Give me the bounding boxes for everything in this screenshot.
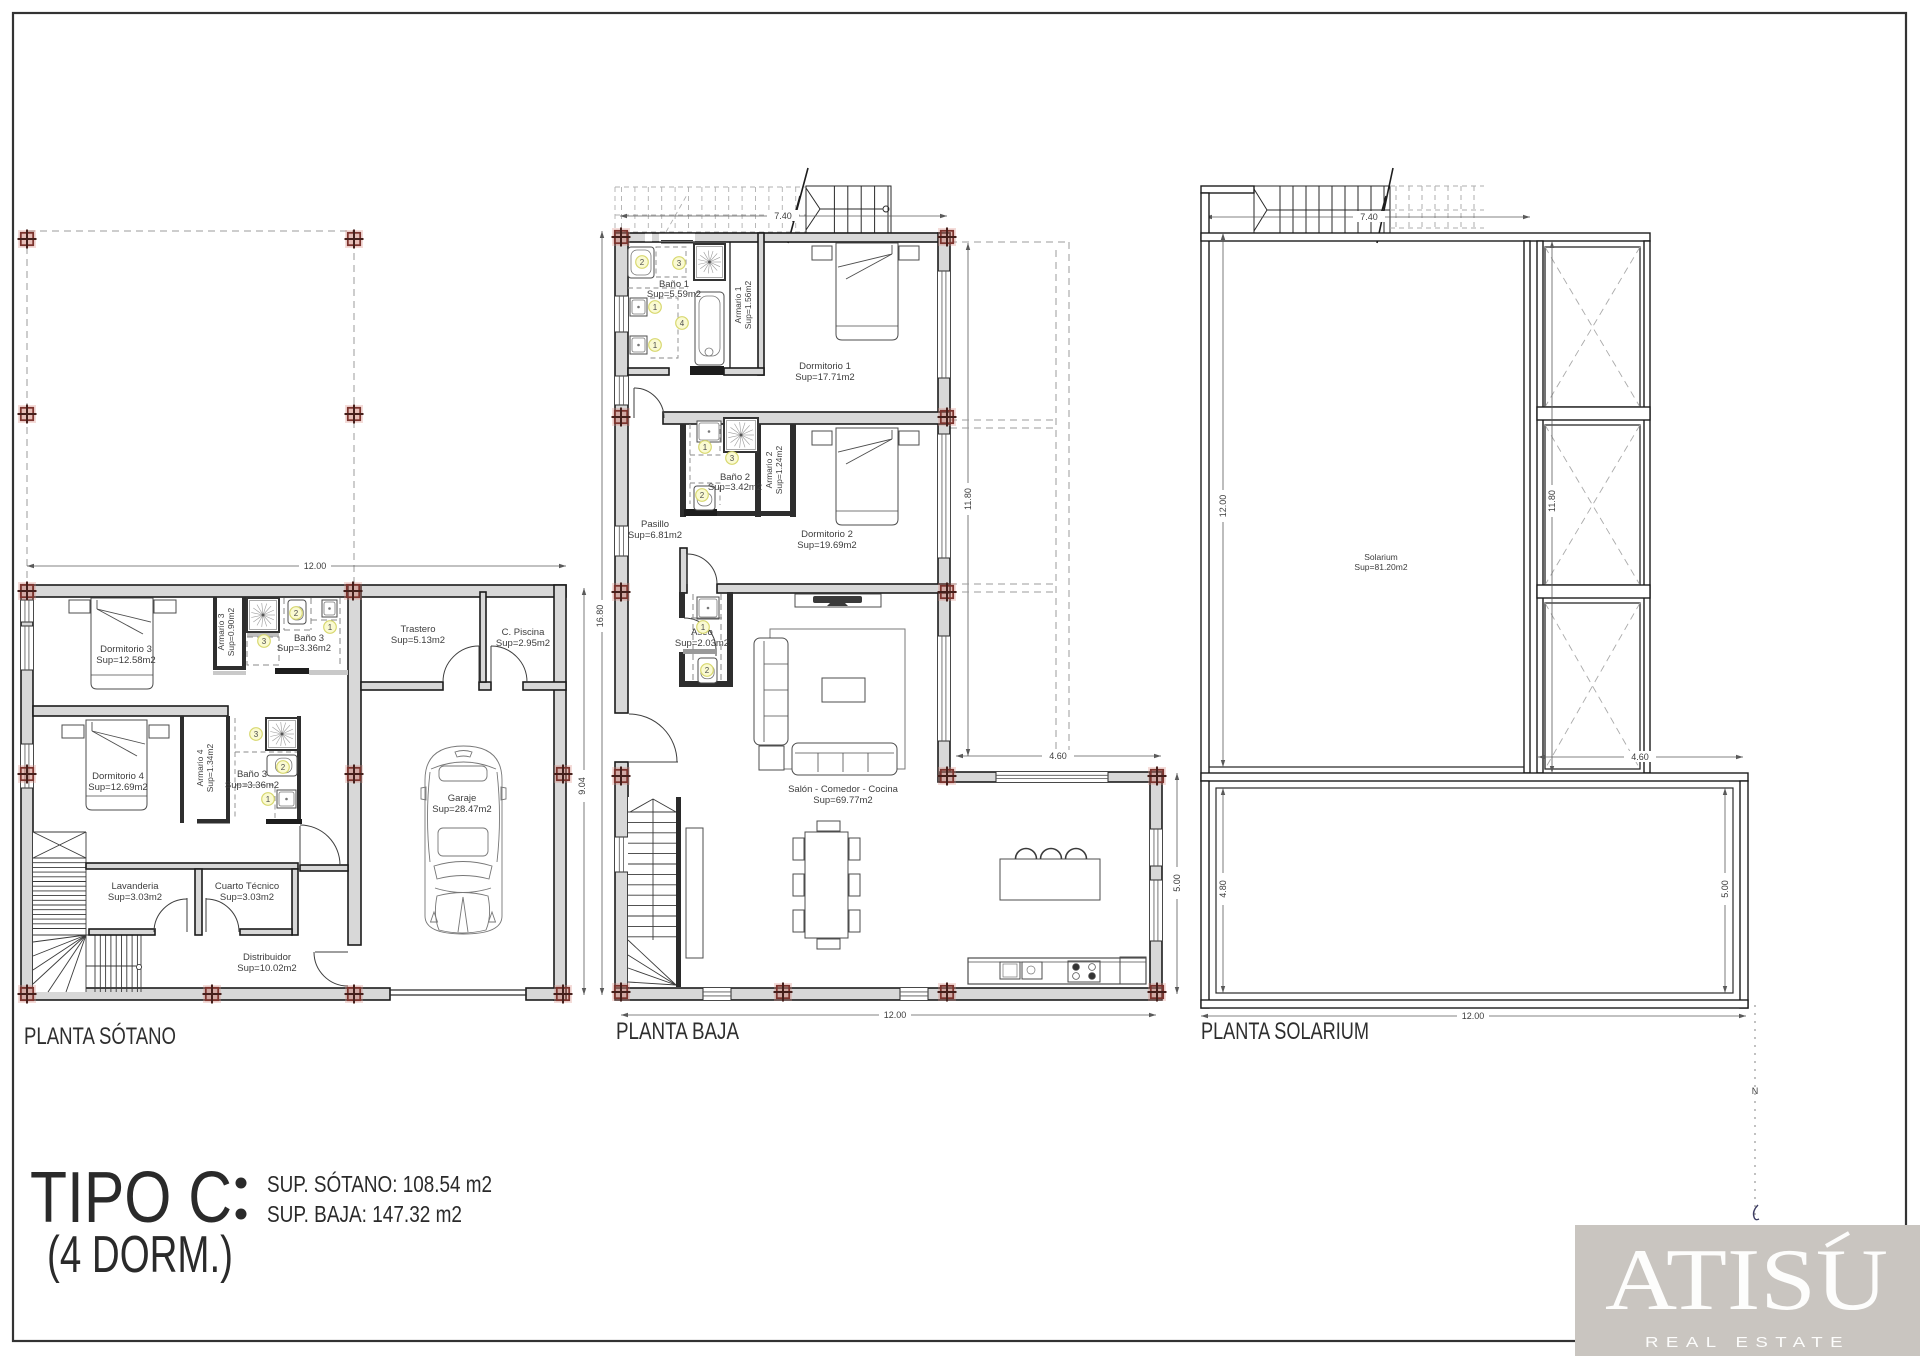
svg-text:Distribuidor: Distribuidor (243, 952, 291, 963)
svg-text:Solarium: Solarium (1364, 552, 1398, 562)
svg-text:Sup=19.69m2: Sup=19.69m2 (797, 540, 856, 551)
svg-text:N: N (1752, 1086, 1759, 1096)
svg-text:Sup=5.59m2: Sup=5.59m2 (647, 289, 701, 300)
svg-text:12.00: 12.00 (884, 1010, 907, 1020)
svg-text:1: 1 (266, 795, 271, 804)
svg-text:Cuarto Técnico: Cuarto Técnico (215, 881, 279, 892)
svg-text:11.80: 11.80 (1547, 490, 1557, 512)
svg-text:Sup=1.56m2: Sup=1.56m2 (743, 281, 753, 330)
svg-text:PLANTA SOLARIUM: PLANTA SOLARIUM (1201, 1018, 1369, 1045)
svg-text:Sup=81.20m2: Sup=81.20m2 (1354, 562, 1407, 572)
svg-text:3: 3 (254, 730, 259, 739)
svg-text:Sup=3.36m2: Sup=3.36m2 (277, 643, 331, 654)
svg-text:1: 1 (653, 341, 658, 350)
svg-text:Dormitorio 3: Dormitorio 3 (100, 644, 152, 655)
svg-text:SUP. BAJA: 147.32 m2: SUP. BAJA: 147.32 m2 (267, 1201, 462, 1227)
svg-text:5.00: 5.00 (1172, 874, 1182, 892)
svg-text:Sup=2.03m2: Sup=2.03m2 (675, 638, 729, 649)
svg-text:Pasillo: Pasillo (641, 519, 669, 530)
svg-text:1: 1 (701, 623, 706, 632)
svg-text:Baño 3: Baño 3 (237, 769, 267, 780)
svg-text:Sup=0.90m2: Sup=0.90m2 (226, 608, 236, 657)
svg-text:PLANTA BAJA: PLANTA BAJA (616, 1018, 739, 1045)
svg-text:Sup=28.47m2: Sup=28.47m2 (432, 804, 491, 815)
svg-text:Lavanderia: Lavanderia (111, 881, 159, 892)
svg-text:2: 2 (640, 258, 645, 267)
svg-text:4.60: 4.60 (1049, 751, 1067, 761)
svg-text:Dormitorio 2: Dormitorio 2 (801, 529, 853, 540)
svg-text:Sup=12.69m2: Sup=12.69m2 (88, 782, 147, 793)
svg-text:PLANTA SÓTANO: PLANTA SÓTANO (24, 1023, 176, 1050)
svg-text:Trastero: Trastero (400, 624, 435, 635)
svg-text:4.80: 4.80 (1218, 880, 1228, 898)
svg-text:Sup=69.77m2: Sup=69.77m2 (813, 795, 872, 806)
svg-text:4.60: 4.60 (1631, 752, 1649, 762)
svg-text:1: 1 (328, 623, 333, 632)
svg-text:1: 1 (703, 443, 708, 452)
svg-text:Dormitorio 4: Dormitorio 4 (92, 771, 144, 782)
svg-text:Sup=10.02m2: Sup=10.02m2 (237, 963, 296, 974)
svg-text:Sup=3.42m2: Sup=3.42m2 (708, 482, 762, 493)
svg-text:5.00: 5.00 (1720, 880, 1730, 898)
svg-text:Sup=12.58m2: Sup=12.58m2 (96, 655, 155, 666)
svg-text:12.00: 12.00 (304, 561, 327, 571)
svg-text:Armario 2: Armario 2 (764, 451, 774, 488)
svg-text:Sup=17.71m2: Sup=17.71m2 (795, 372, 854, 383)
svg-text:Sup=3.03m2: Sup=3.03m2 (108, 892, 162, 903)
svg-text:3: 3 (262, 637, 267, 646)
svg-text:Salón - Comedor - Cocina: Salón - Comedor - Cocina (788, 784, 899, 795)
svg-text:3: 3 (730, 454, 735, 463)
svg-text:16.80: 16.80 (595, 605, 605, 628)
svg-text:Armario 1: Armario 1 (733, 286, 743, 323)
svg-text:2: 2 (705, 666, 710, 675)
svg-text:7.40: 7.40 (1360, 212, 1378, 222)
svg-text:Sup=3.36m2: Sup=3.36m2 (225, 780, 279, 791)
svg-text:Armario 4: Armario 4 (195, 749, 205, 786)
svg-text:2: 2 (281, 763, 286, 772)
svg-text:REAL ESTATE: REAL ESTATE (1645, 1334, 1850, 1351)
svg-text:(4 DORM.): (4 DORM.) (47, 1226, 233, 1284)
svg-text:Sup=1.34m2: Sup=1.34m2 (205, 744, 215, 793)
svg-text:12.00: 12.00 (1462, 1011, 1485, 1021)
svg-text:Garaje: Garaje (448, 793, 477, 804)
svg-text:Sup=6.81m2: Sup=6.81m2 (628, 530, 682, 541)
svg-text:9.04: 9.04 (577, 777, 587, 795)
svg-text:7.40: 7.40 (774, 211, 792, 221)
svg-text:12.00: 12.00 (1218, 495, 1228, 518)
svg-text:2: 2 (294, 609, 299, 618)
svg-text:Dormitorio 1: Dormitorio 1 (799, 361, 851, 372)
svg-text:4: 4 (680, 319, 685, 328)
svg-text:Sup=3.03m2: Sup=3.03m2 (220, 892, 274, 903)
svg-text:SUP. SÓTANO: 108.54 m2: SUP. SÓTANO: 108.54 m2 (267, 1171, 492, 1197)
svg-text:C. Piscina: C. Piscina (502, 627, 545, 638)
svg-text:1: 1 (653, 303, 658, 312)
svg-text:3: 3 (677, 259, 682, 268)
svg-text:ATISU: ATISU (1605, 1232, 1888, 1329)
svg-text:Sup=2.95m2: Sup=2.95m2 (496, 638, 550, 649)
svg-text:2: 2 (700, 491, 705, 500)
svg-text:Armario 3: Armario 3 (216, 613, 226, 650)
svg-text:Sup=5.13m2: Sup=5.13m2 (391, 635, 445, 646)
svg-text:Sup=1.24m2: Sup=1.24m2 (774, 446, 784, 495)
svg-text:11.80: 11.80 (963, 488, 973, 510)
